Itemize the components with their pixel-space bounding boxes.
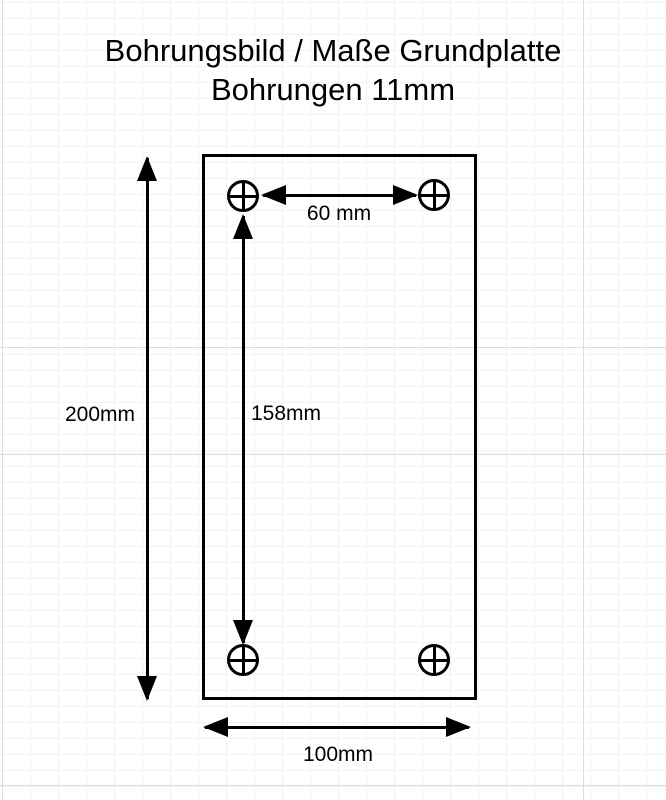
hole-cross-vertical — [242, 646, 245, 674]
grid-major-line — [583, 0, 584, 800]
arrow-line — [205, 726, 469, 729]
dimension-label-158mm: 158mm — [251, 402, 321, 426]
hole-cross-vertical — [242, 182, 245, 210]
hole-cross-vertical — [433, 646, 436, 674]
arrowhead-up-icon — [233, 214, 253, 239]
drawing-title-line1: Bohrungsbild / Maße Grundplatte — [0, 31, 666, 70]
arrowhead-left-icon — [203, 717, 228, 737]
grid-major-line — [0, 785, 666, 786]
drawing-canvas: Bohrungsbild / Maße Grundplatte Bohrunge… — [0, 0, 666, 800]
dimension-arrow-plate-height — [137, 156, 157, 701]
drill-hole-icon — [227, 644, 259, 676]
dimension-arrow-plate-width — [203, 717, 471, 737]
arrowhead-down-icon — [137, 676, 157, 701]
arrow-line — [146, 158, 149, 699]
grid-major-line — [2, 0, 3, 800]
dimension-arrow-hole-spacing-vertical — [233, 214, 253, 645]
arrowhead-up-icon — [137, 156, 157, 181]
drill-hole-icon — [418, 644, 450, 676]
dimension-label-100mm: 100mm — [278, 743, 398, 767]
arrow-line — [242, 216, 245, 643]
drill-hole-icon — [418, 179, 450, 211]
dimension-label-200mm: 200mm — [50, 403, 135, 427]
dimension-label-60mm: 60 mm — [279, 202, 399, 226]
hole-cross-vertical — [433, 181, 436, 209]
drawing-title: Bohrungsbild / Maße Grundplatte Bohrunge… — [0, 31, 666, 109]
arrowhead-right-icon — [446, 717, 471, 737]
arrowhead-down-icon — [233, 620, 253, 645]
drawing-title-line2: Bohrungen 11mm — [0, 70, 666, 109]
drill-hole-icon — [227, 180, 259, 212]
